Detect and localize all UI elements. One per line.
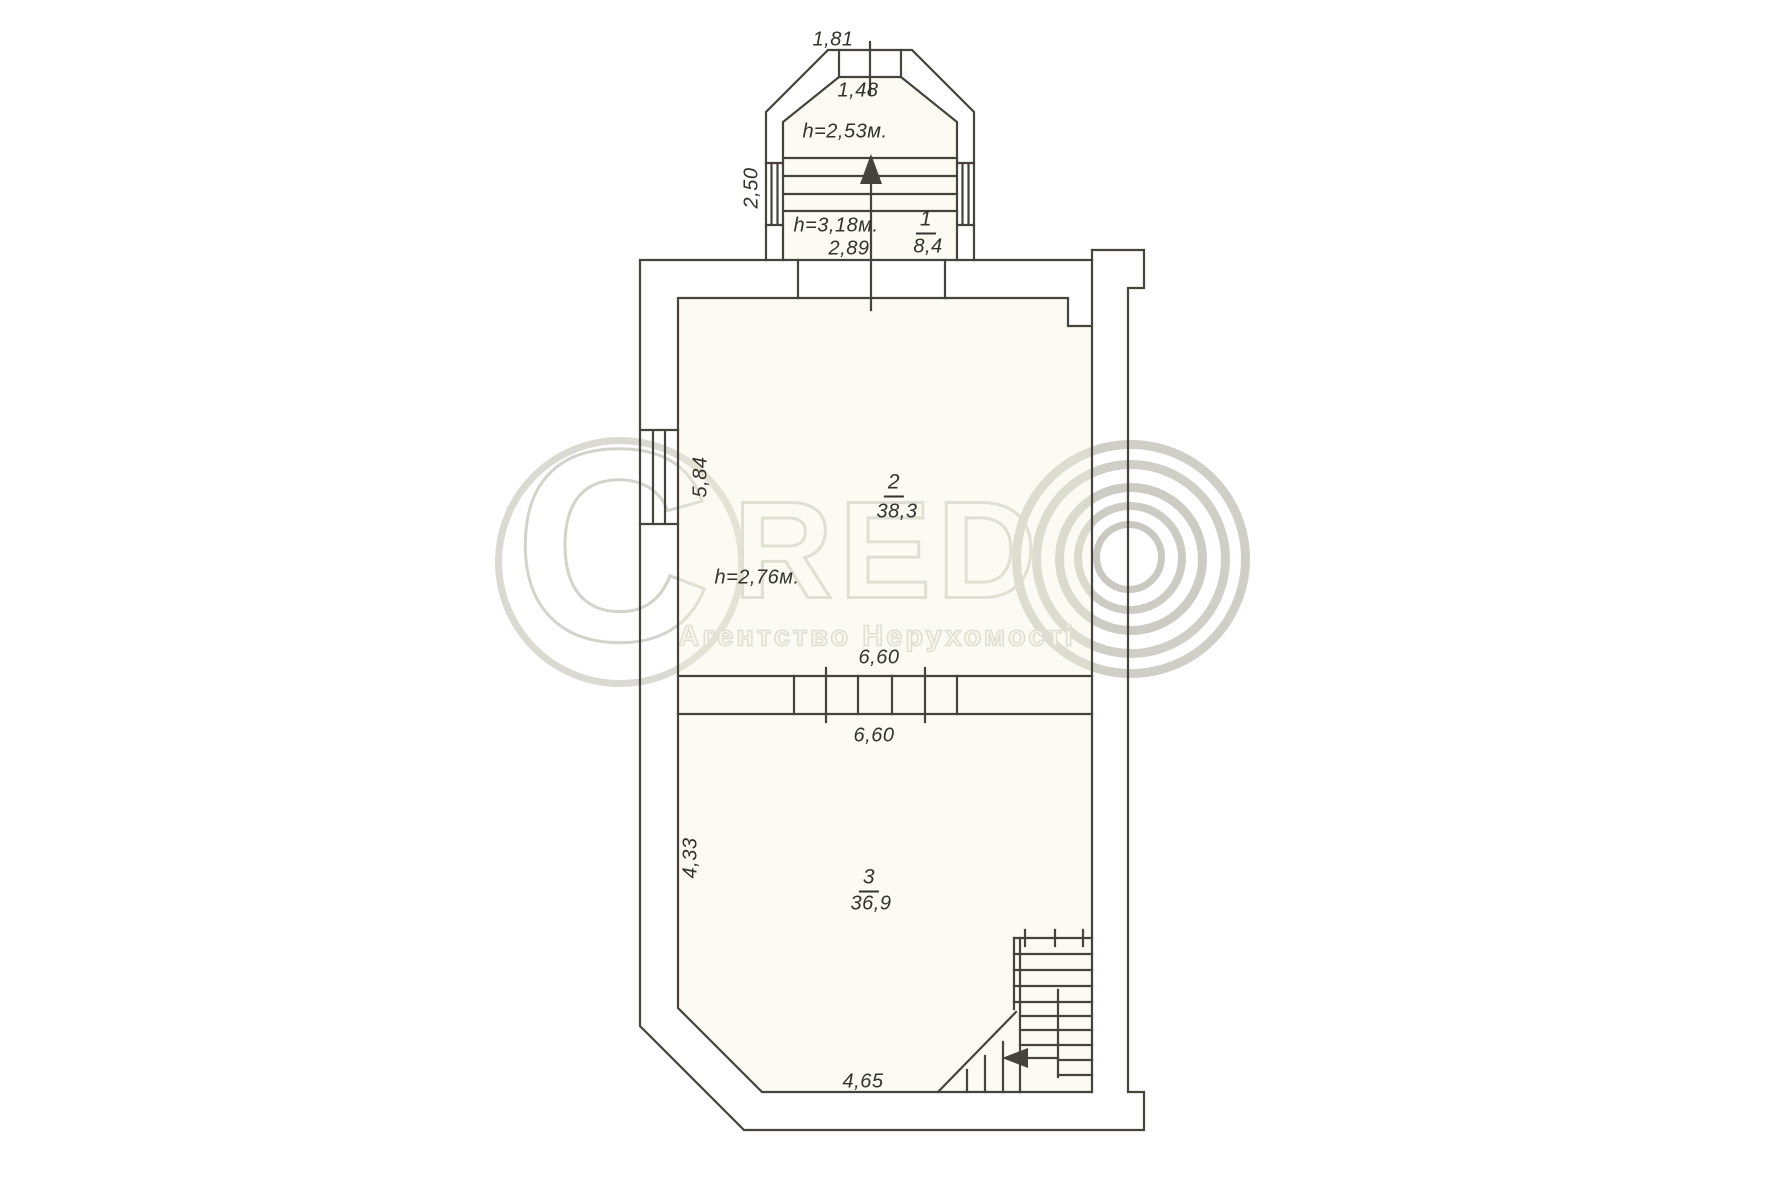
room1-height-note: h=3,18м. <box>794 215 879 238</box>
room1-number: 1 <box>916 208 936 235</box>
room1-area: 8,4 <box>913 236 942 259</box>
dim-room3-width: 6,60 <box>854 725 895 748</box>
dim-room3-depth: 4,33 <box>680 838 703 879</box>
dim-bay-width-inner: 1,48 <box>838 80 879 103</box>
floor-plan-drawing <box>0 0 1772 1181</box>
room2-area: 38,3 <box>877 501 918 524</box>
room2-number: 2 <box>884 471 904 498</box>
room2-left-window <box>640 430 678 524</box>
room2-height-note: h=2,76м. <box>715 567 800 590</box>
dim-room2-width: 6,60 <box>859 647 900 670</box>
floor-plan-page: C RED Агентство Нерухомості <box>0 0 1772 1181</box>
dim-room1-width: 2,89 <box>829 238 870 261</box>
bay-window-left-window <box>766 163 783 225</box>
room3-area: 36,9 <box>851 893 892 916</box>
bay-height-note: h=2,53м. <box>803 121 888 144</box>
dim-room2-depth: 5,84 <box>690 457 713 498</box>
bay-window-right-window <box>957 163 974 225</box>
dim-bay-width-outer: 1,81 <box>813 29 854 52</box>
dim-bay-side-depth: 2,50 <box>741 168 764 209</box>
dim-room3-bottom-width: 4,65 <box>843 1071 884 1094</box>
room3-number: 3 <box>859 866 879 893</box>
